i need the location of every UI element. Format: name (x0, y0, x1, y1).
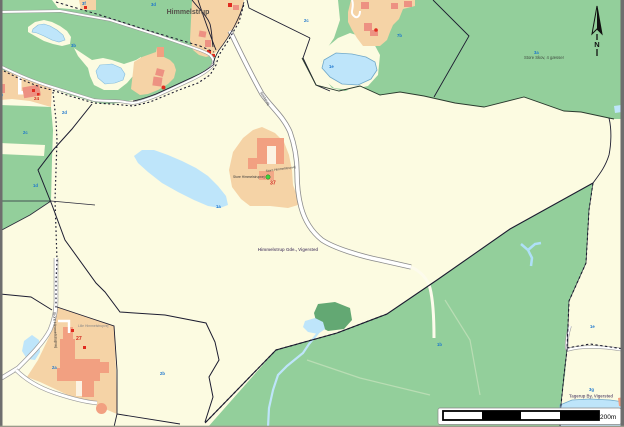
svg-text:1e: 1e (329, 64, 334, 69)
svg-text:2a: 2a (52, 365, 57, 370)
svg-text:24: 24 (34, 96, 40, 101)
svg-text:3b: 3b (71, 43, 76, 48)
svg-text:1a: 1a (216, 204, 221, 209)
svg-text:3a: 3a (534, 50, 539, 55)
svg-text:1d: 1d (33, 183, 38, 188)
svg-text:2d: 2d (62, 110, 67, 115)
svg-text:Store Skov, 4 gæsser: Store Skov, 4 gæsser (524, 55, 565, 60)
svg-text:2c: 2c (23, 130, 28, 135)
svg-text:1b: 1b (437, 342, 442, 347)
svg-text:1e: 1e (590, 324, 595, 329)
svg-text:Himmelstrup Gde., Vigersted: Himmelstrup Gde., Vigersted (258, 247, 319, 252)
svg-text:3f: 3f (82, 1, 86, 6)
svg-text:3g: 3g (589, 387, 594, 392)
svg-text:2c: 2c (304, 18, 309, 23)
svg-text:37: 37 (270, 181, 276, 187)
svg-text:200m: 200m (600, 414, 616, 421)
svg-text:Tagerup By, Vigersted: Tagerup By, Vigersted (569, 394, 613, 399)
svg-text:Lille Himmelstrupvej: Lille Himmelstrupvej (78, 324, 109, 328)
svg-text:3d: 3d (151, 2, 156, 7)
svg-text:2b: 2b (160, 371, 165, 376)
svg-text:27: 27 (76, 336, 82, 342)
svg-text:Himmelstrup: Himmelstrup (167, 9, 210, 16)
svg-text:N: N (594, 40, 599, 49)
svg-text:7b: 7b (397, 33, 402, 38)
svg-text:Store Himmelstrupvej: Store Himmelstrupvej (233, 175, 265, 179)
